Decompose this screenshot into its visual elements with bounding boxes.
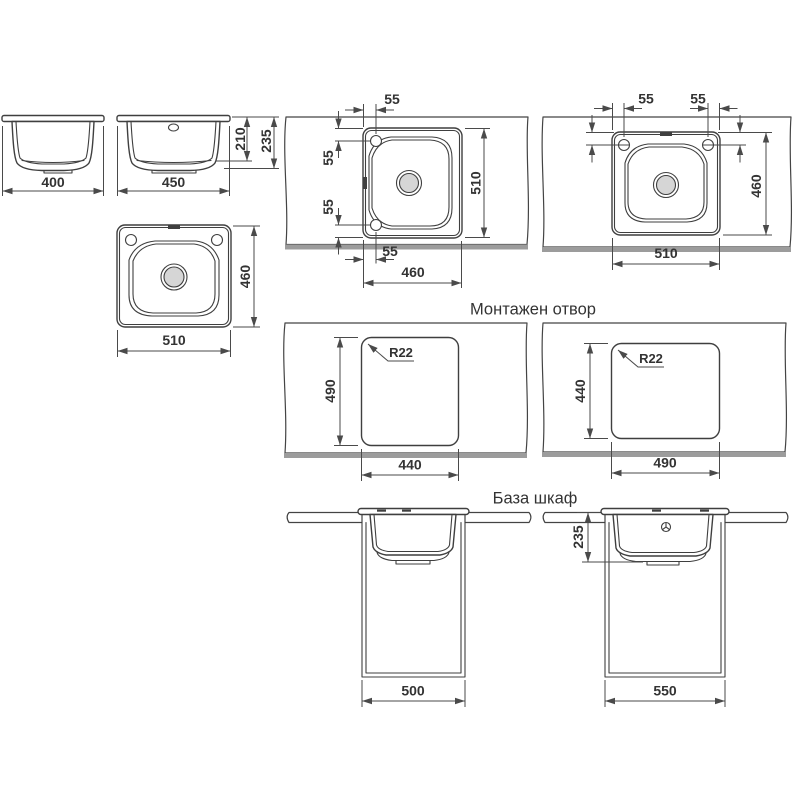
countertop-piece [543, 513, 605, 523]
section-title-mounting-hole: Монтажен отвор [470, 300, 596, 318]
overflow-slot [168, 226, 180, 230]
rim-mark [652, 510, 661, 512]
dim-label-510: 510 [467, 171, 483, 195]
radius-label: R22 [389, 345, 413, 360]
dim-label-460: 460 [401, 264, 425, 280]
countertop-piece [287, 513, 362, 523]
dim-width-550: 550 [605, 680, 725, 707]
dim-label-55: 55 [382, 243, 398, 259]
dim-label-210: 210 [232, 127, 248, 151]
dim-label-400: 400 [41, 174, 65, 190]
drawing-canvas: 400 450 210 235 [0, 0, 800, 800]
rim-mark [377, 510, 386, 512]
base-cabinet-left: 500 [287, 509, 531, 708]
dim-width-510: 510 [118, 330, 231, 357]
countertop-shadow [285, 245, 528, 250]
bowl-outline [12, 122, 94, 171]
dim-label-55: 55 [320, 150, 336, 166]
cutout-right: R22 440 490 [542, 323, 786, 479]
dim-label-460: 460 [748, 174, 764, 198]
dim-depth-210-235: 210 235 [216, 117, 279, 169]
drain-icon [657, 176, 676, 195]
drain-icon [164, 267, 184, 287]
sink-rim-profile [2, 116, 104, 122]
dim-label-235: 235 [570, 525, 586, 549]
sink-rim-profile [117, 116, 230, 122]
dim-label-510: 510 [654, 245, 678, 261]
dim-label-235: 235 [258, 129, 274, 153]
dim-label-500: 500 [401, 682, 425, 698]
overflow-slot [364, 177, 368, 189]
countertop-piece [465, 513, 531, 523]
rim-mark [700, 510, 709, 512]
bowl-outline [370, 515, 456, 556]
cutout-left: R22 490 440 [284, 323, 528, 481]
sink-specification-drawing: 400 450 210 235 [0, 0, 800, 800]
dim-label-440: 440 [398, 456, 422, 472]
base-cabinet-right: 235 550 [543, 509, 788, 708]
side-view-450: 450 210 235 [117, 116, 279, 197]
dim-label-510: 510 [162, 332, 186, 348]
dim-label-55: 55 [320, 199, 336, 215]
faucet-hole-icon [371, 220, 382, 231]
bowl-outline [127, 122, 220, 171]
dim-width-500: 500 [362, 680, 465, 707]
faucet-hole-icon [126, 235, 137, 246]
dim-label-490: 490 [653, 454, 677, 470]
faucet-hole-icon [212, 235, 223, 246]
dim-label-55: 55 [638, 90, 654, 106]
dim-depth-460: 460 [233, 226, 260, 327]
sink-rim-profile [358, 509, 469, 515]
rim-mark [402, 510, 411, 512]
dim-label-490: 490 [322, 379, 338, 403]
dim-label-550: 550 [653, 682, 677, 698]
sink-rim-profile [601, 509, 729, 515]
bowl-outline [613, 515, 713, 557]
section-title-base-cabinet: База шкаф [493, 489, 578, 507]
faucet-hole-icon [371, 136, 382, 147]
dim-label-55: 55 [690, 90, 706, 106]
dim-label-55: 55 [384, 91, 400, 107]
dim-label-460: 460 [237, 265, 253, 289]
drain-icon [400, 174, 419, 193]
dim-label-450: 450 [162, 174, 186, 190]
side-view-400: 400 [2, 116, 104, 197]
overflow-slot [660, 133, 672, 137]
dim-label-440: 440 [572, 379, 588, 403]
top-view-sink: 460 510 [117, 225, 260, 357]
countertop-piece [725, 513, 788, 523]
radius-label: R22 [639, 351, 663, 366]
